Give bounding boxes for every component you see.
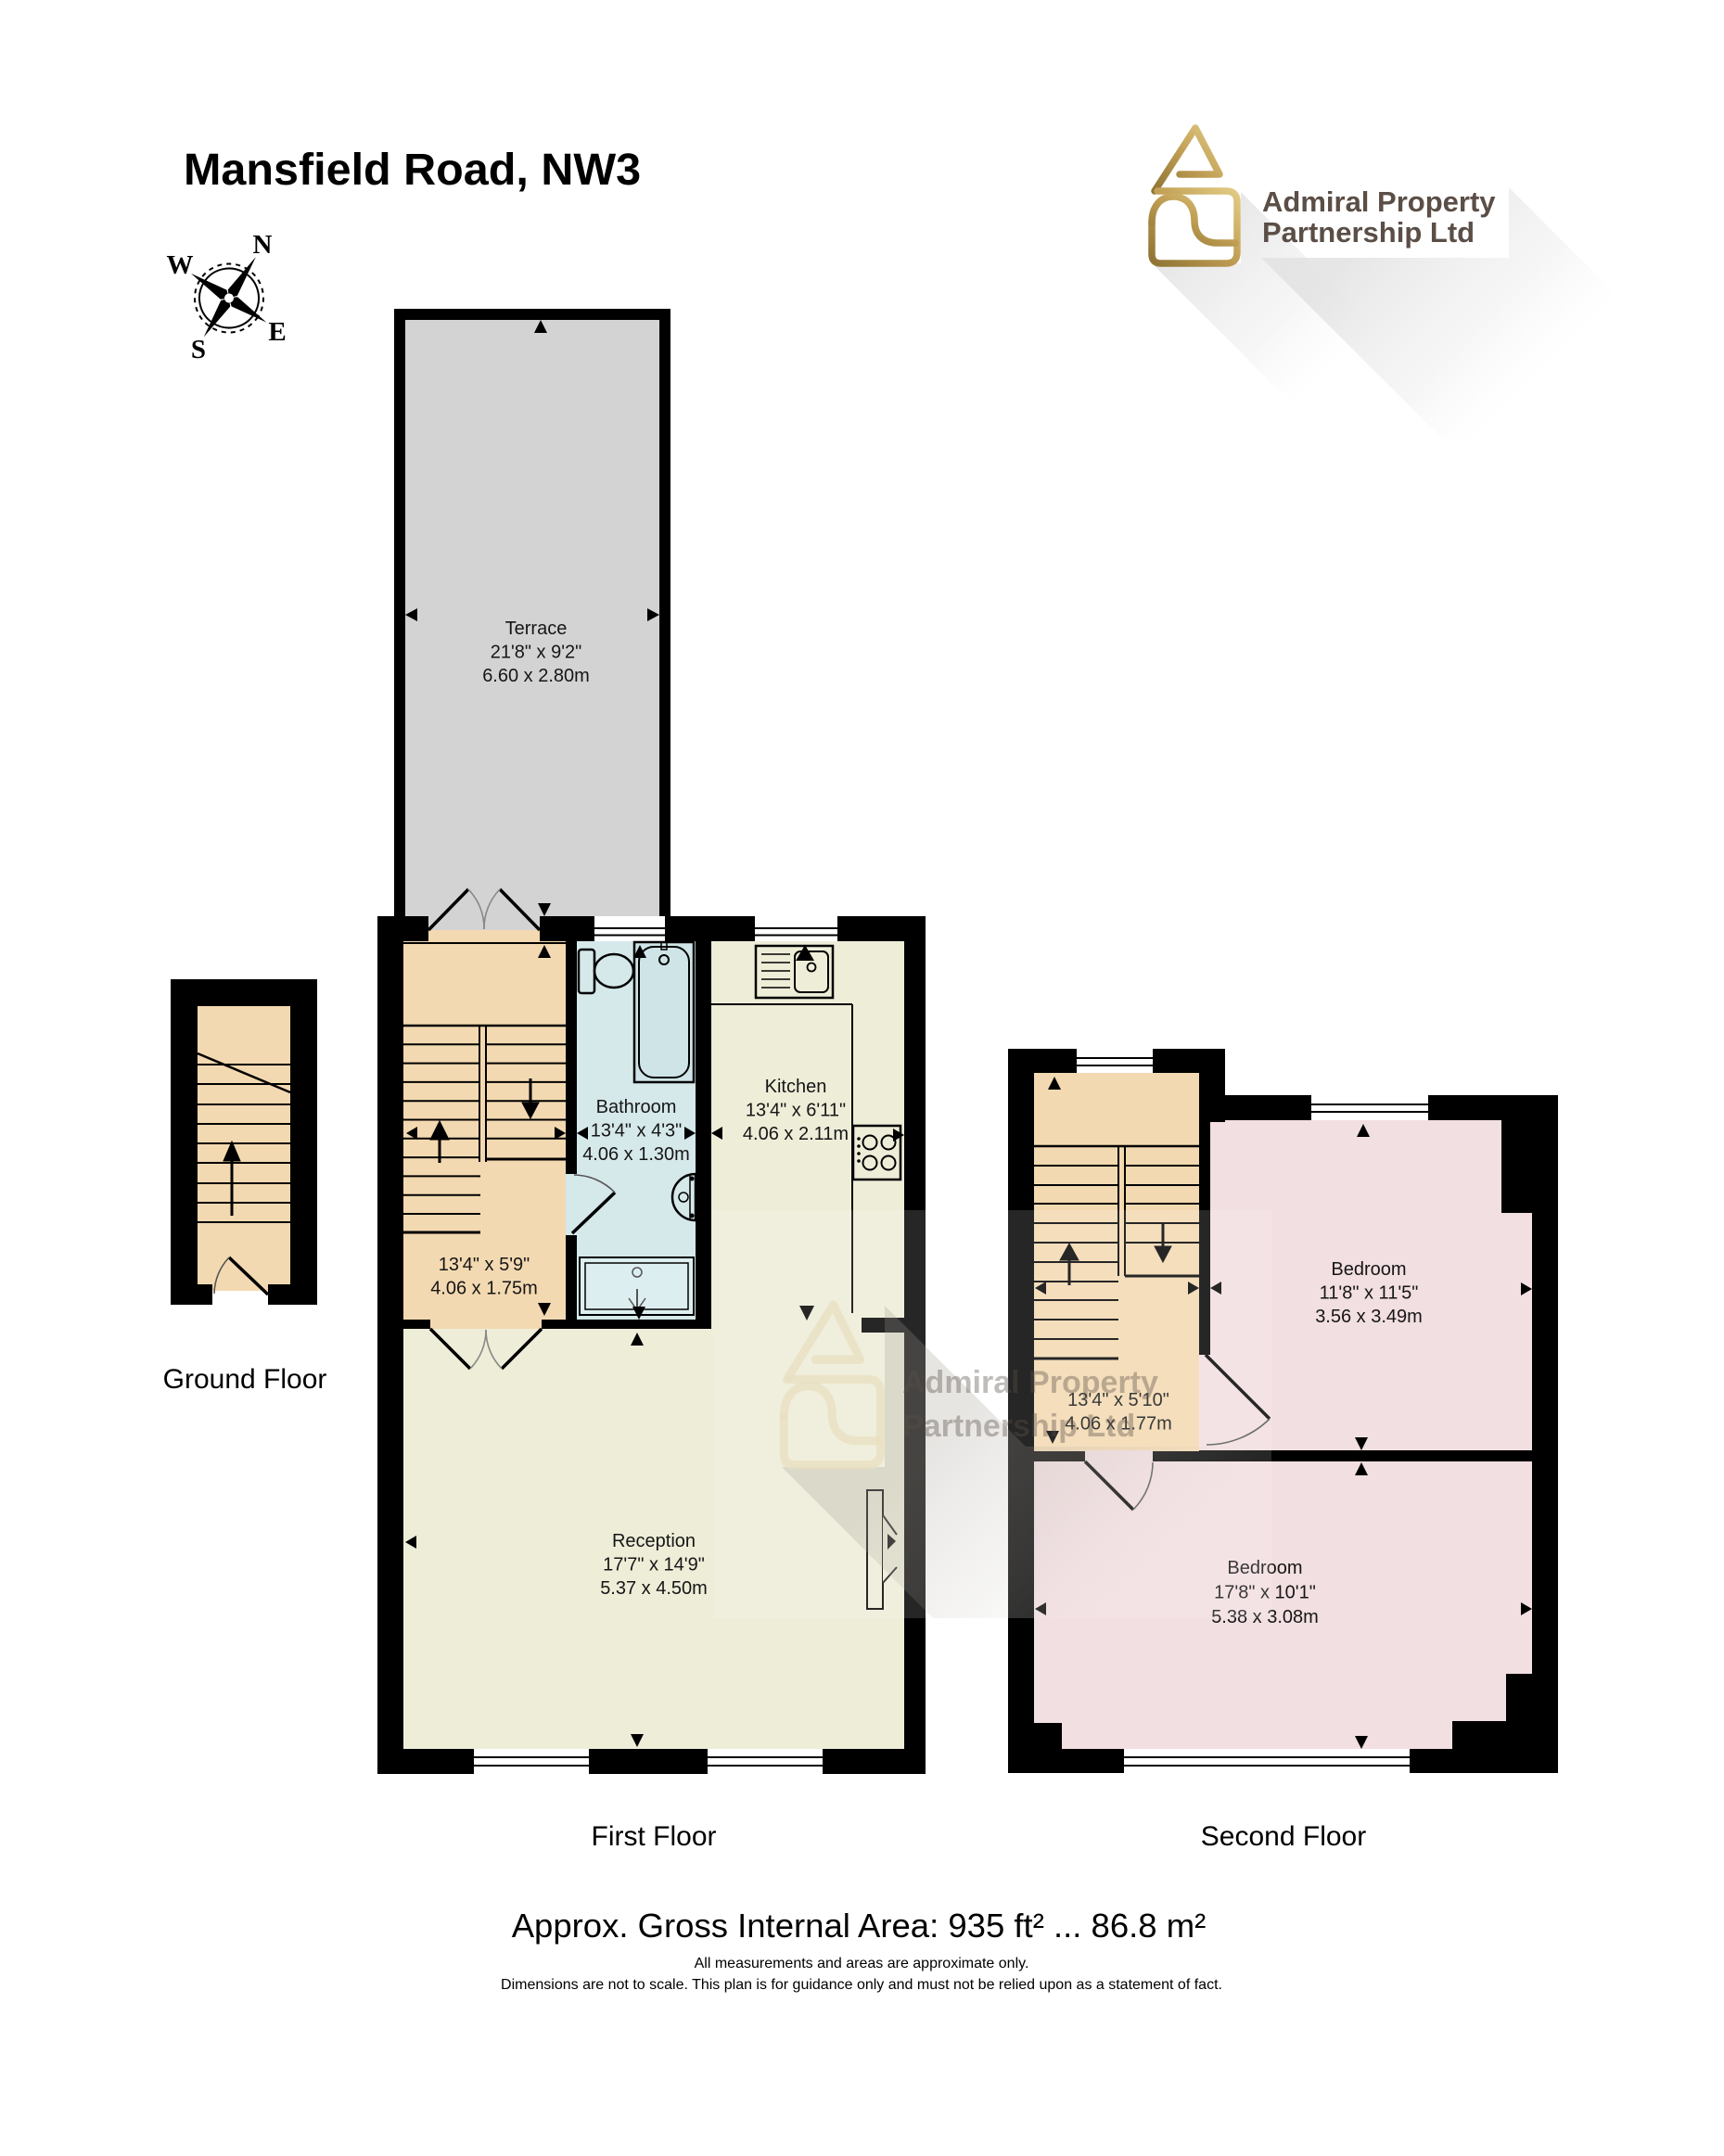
svg-text:Approx. Gross Internal Area: 9: Approx. Gross Internal Area: 935 ft² ...… — [512, 1907, 1207, 1945]
svg-text:4.06 x 1.75m: 4.06 x 1.75m — [430, 1279, 538, 1299]
svg-text:First Floor: First Floor — [592, 1821, 717, 1852]
svg-text:13'4" x 6'11": 13'4" x 6'11" — [746, 1101, 846, 1121]
svg-text:13'4" x 5'9": 13'4" x 5'9" — [439, 1255, 530, 1275]
svg-text:E: E — [268, 317, 286, 347]
svg-text:Ground Floor: Ground Floor — [163, 1364, 327, 1395]
svg-text:Mansfield Road, NW3: Mansfield Road, NW3 — [184, 145, 641, 195]
svg-text:11'8" x 11'5": 11'8" x 11'5" — [1320, 1283, 1419, 1304]
svg-text:13'4" x 4'3": 13'4" x 4'3" — [591, 1121, 683, 1142]
svg-text:W: W — [167, 250, 194, 280]
svg-text:Dimensions are not to scale. T: Dimensions are not to scale. This plan i… — [501, 1977, 1222, 1993]
svg-text:N: N — [253, 230, 273, 260]
svg-text:5.37 x 4.50m: 5.37 x 4.50m — [600, 1578, 708, 1599]
svg-text:All measurements and areas are: All measurements and areas are approxima… — [695, 1956, 1029, 1971]
svg-text:4.06 x 1.30m: 4.06 x 1.30m — [582, 1144, 690, 1165]
svg-text:Bathroom: Bathroom — [596, 1097, 677, 1117]
svg-text:Kitchen: Kitchen — [765, 1077, 827, 1097]
svg-text:Admiral Property: Admiral Property — [1262, 185, 1496, 218]
svg-text:17'7" x 14'9": 17'7" x 14'9" — [603, 1555, 705, 1576]
svg-text:Admiral Property: Admiral Property — [902, 1365, 1158, 1400]
svg-text:Reception: Reception — [612, 1531, 696, 1551]
svg-text:Bedroom: Bedroom — [1331, 1259, 1406, 1280]
svg-text:3.56 x 3.49m: 3.56 x 3.49m — [1315, 1307, 1423, 1327]
svg-text:21'8" x 9'2": 21'8" x 9'2" — [491, 643, 582, 663]
svg-text:4.06 x 2.11m: 4.06 x 2.11m — [743, 1124, 849, 1144]
svg-text:6.60 x 2.80m: 6.60 x 2.80m — [482, 666, 590, 686]
svg-text:Partnership Ltd: Partnership Ltd — [902, 1409, 1135, 1444]
svg-text:Terrace: Terrace — [505, 619, 568, 639]
svg-text:Partnership Ltd: Partnership Ltd — [1262, 216, 1475, 249]
svg-text:Second Floor: Second Floor — [1201, 1821, 1366, 1852]
svg-text:S: S — [191, 335, 206, 364]
